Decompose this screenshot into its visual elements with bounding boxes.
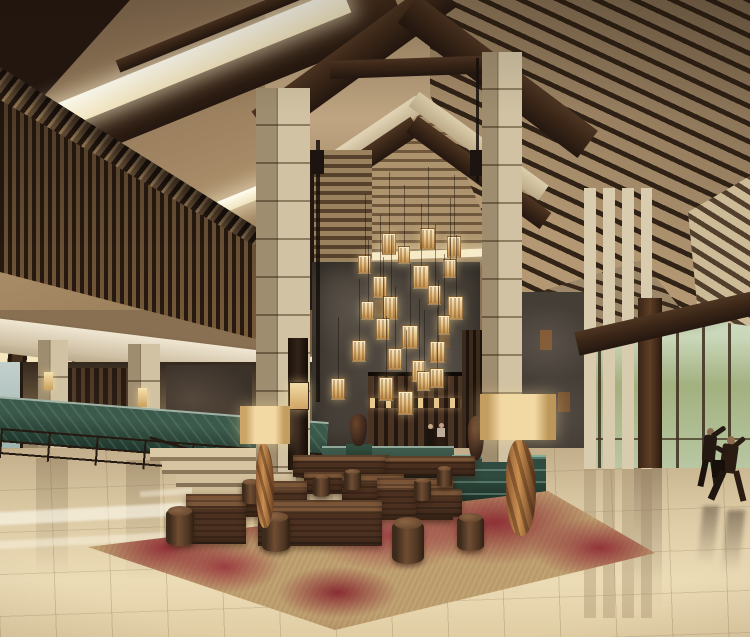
lantern-pendant bbox=[413, 265, 429, 289]
lantern-pendant bbox=[420, 228, 435, 250]
column-sconce-2 bbox=[138, 388, 147, 407]
lantern-pendant bbox=[398, 391, 413, 415]
lantern-pendant bbox=[373, 276, 387, 298]
pillar-lantern bbox=[289, 382, 309, 410]
guest-figure-2 bbox=[437, 423, 445, 448]
lantern-pendant bbox=[379, 377, 393, 401]
drum-stool bbox=[437, 467, 452, 487]
lantern-pendant bbox=[402, 325, 418, 349]
lantern-pendant bbox=[443, 259, 456, 278]
pedestal-vase bbox=[350, 414, 367, 446]
lantern-pendant bbox=[376, 318, 390, 340]
lantern-pendant bbox=[358, 255, 371, 274]
stone-niche-light-2 bbox=[558, 392, 570, 412]
walnut-bench bbox=[186, 494, 246, 544]
stone-niche-light-1 bbox=[540, 330, 552, 350]
hanging-light-rod-1 bbox=[316, 140, 320, 402]
lantern-pendant bbox=[388, 348, 402, 370]
figure-rear-leg-1 bbox=[697, 459, 708, 487]
floor-lamp-left-shade bbox=[240, 406, 290, 444]
walnut-bench bbox=[385, 456, 475, 476]
lantern-pendant bbox=[430, 368, 444, 388]
lantern-pendant bbox=[428, 285, 441, 305]
drum-stool bbox=[392, 520, 424, 564]
guest-figure-1 bbox=[426, 424, 434, 448]
drum-stool bbox=[313, 475, 330, 497]
lantern-pendant bbox=[382, 233, 396, 255]
column-sconce-1 bbox=[44, 372, 53, 390]
drum-stool bbox=[344, 470, 361, 490]
walking-figure-front bbox=[712, 436, 750, 512]
guest-1-body bbox=[426, 429, 434, 447]
drum-stool bbox=[166, 508, 194, 546]
lantern-pendant bbox=[331, 378, 345, 400]
figure-front-leg-2 bbox=[733, 470, 746, 502]
lantern-pendant bbox=[398, 246, 410, 264]
lantern-pendant bbox=[352, 340, 366, 362]
lobby-scene: Luxury hotel lobby — architectural rende… bbox=[0, 0, 750, 637]
lantern-pendant bbox=[448, 296, 463, 320]
drum-stool bbox=[457, 515, 484, 551]
lantern-pendant bbox=[417, 371, 430, 391]
drum-stool bbox=[414, 479, 431, 501]
lantern-pendant bbox=[361, 301, 374, 320]
guest-2-torso bbox=[437, 428, 445, 437]
floor-lamp-right-shade bbox=[480, 394, 556, 440]
hanging-spotlight-box-1 bbox=[311, 150, 324, 174]
lantern-pendant bbox=[437, 315, 450, 335]
